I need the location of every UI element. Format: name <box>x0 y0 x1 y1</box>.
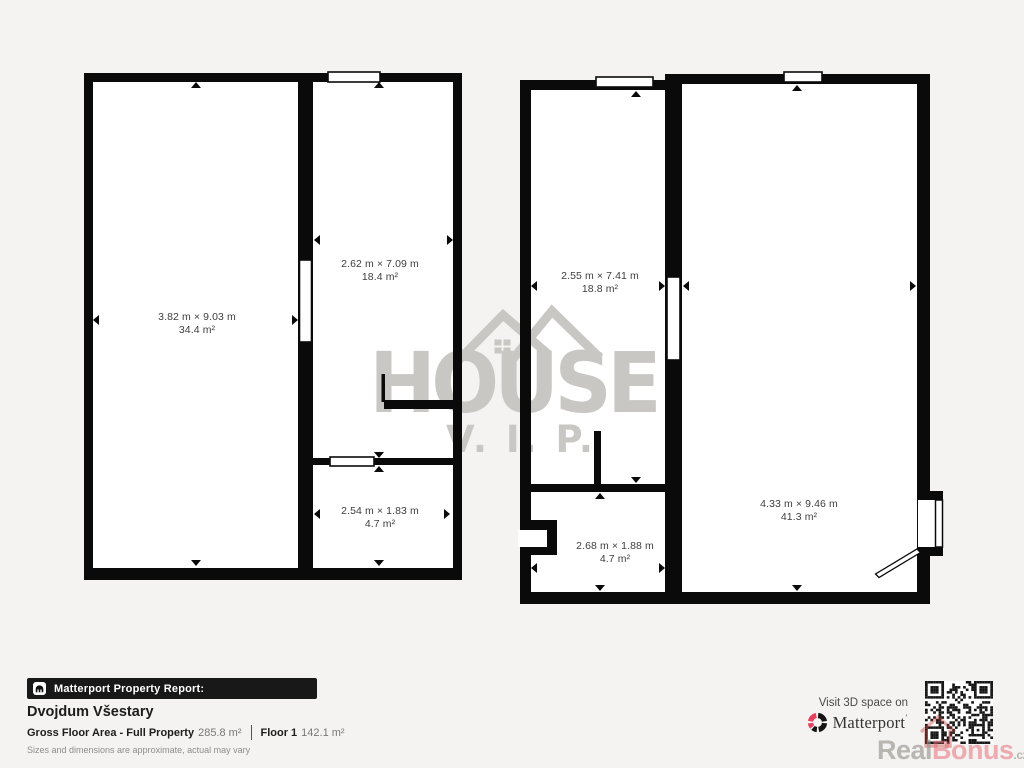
visit-3d-text: Visit 3D space on <box>819 697 908 709</box>
divider <box>251 725 252 740</box>
area-stats: Gross Floor Area - Full Property 285.8 m… <box>27 725 345 740</box>
floorplan-page: HOUSE V. I. P. <box>0 0 1024 768</box>
floor-label: Floor 1 <box>261 727 298 739</box>
matterport-mark-icon <box>807 712 828 733</box>
floor-value: 142.1 m² <box>301 727 344 739</box>
disclaimer-text: Sizes and dimensions are approximate, ac… <box>27 745 250 755</box>
realbonus-tld: .cz <box>1014 748 1024 762</box>
property-name: Dvojdum Všestary <box>27 704 154 720</box>
gfa-value: 285.8 m² <box>198 727 241 739</box>
matterport-logo: Matterport’ <box>807 712 908 733</box>
footer: Matterport Property Report: Dvojdum Všes… <box>0 0 1024 768</box>
matterport-report-badge: Matterport Property Report: <box>27 678 317 699</box>
matterport-wordmark: Matterport’ <box>833 713 908 733</box>
realbonus-real: Real <box>877 735 932 765</box>
realbonus-bonus: Bonus <box>932 735 1014 765</box>
badge-label: Matterport Property Report: <box>54 683 204 695</box>
realbonus-watermark: RealBonus.cz <box>877 737 1024 764</box>
building-icon <box>33 682 46 695</box>
gfa-label: Gross Floor Area - Full Property <box>27 727 194 739</box>
